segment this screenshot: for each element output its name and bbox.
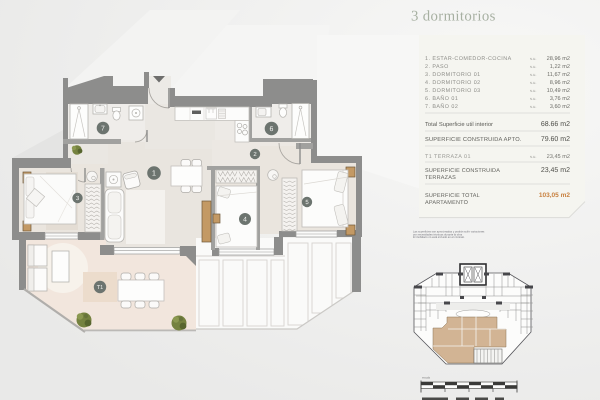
- svg-text:s.u.: s.u.: [530, 154, 536, 159]
- svg-text:TERRAZAS: TERRAZAS: [425, 175, 456, 181]
- svg-text:Total Superficie util interior: Total Superficie util interior: [425, 121, 493, 128]
- svg-text:SUPERFICIE CONSTRUIDA APTO.: SUPERFICIE CONSTRUIDA APTO.: [425, 137, 522, 143]
- svg-text:3 dormitorios: 3 dormitorios: [411, 9, 496, 25]
- svg-text:s.u.: s.u.: [530, 72, 536, 77]
- svg-text:5. DORMITORIO 03: 5. DORMITORIO 03: [425, 88, 481, 94]
- svg-text:s.u.: s.u.: [530, 64, 536, 69]
- svg-text:7. BAÑO 02: 7. BAÑO 02: [425, 103, 458, 110]
- svg-text:23,45 m2: 23,45 m2: [547, 154, 570, 160]
- svg-text:4. DORMITORIO 02: 4. DORMITORIO 02: [425, 80, 481, 86]
- svg-text:s.u.: s.u.: [530, 88, 536, 93]
- svg-text:11,67 m2: 11,67 m2: [547, 72, 570, 78]
- svg-text:8,96 m2: 8,96 m2: [550, 80, 570, 86]
- svg-text:1: 1: [152, 169, 156, 178]
- svg-text:7: 7: [101, 125, 105, 132]
- svg-text:s.u.: s.u.: [530, 96, 536, 101]
- svg-text:28,96 m2: 28,96 m2: [547, 56, 570, 62]
- svg-text:APARTAMENTO: APARTAMENTO: [425, 200, 469, 206]
- svg-text:1. ESTAR-COMEDOR-COCINA: 1. ESTAR-COMEDOR-COCINA: [425, 56, 512, 62]
- svg-text:1,22 m2: 1,22 m2: [550, 64, 570, 70]
- svg-text:SUPERFICIE CONSTRUIDA: SUPERFICIE CONSTRUIDA: [425, 168, 500, 174]
- svg-text:68.66 m2: 68.66 m2: [541, 121, 570, 128]
- svg-text:6: 6: [270, 126, 274, 133]
- svg-text:6. BAÑO 01: 6. BAÑO 01: [425, 95, 458, 102]
- svg-text:4: 4: [243, 216, 247, 223]
- svg-text:79.60 m2: 79.60 m2: [541, 136, 570, 143]
- svg-text:s.u.: s.u.: [530, 80, 536, 85]
- svg-text:El mobiliario no está incluido: El mobiliario no está incluido en el con…: [413, 236, 465, 239]
- svg-text:s.u.: s.u.: [530, 104, 536, 109]
- svg-text:3,60 m2: 3,60 m2: [550, 104, 570, 110]
- svg-text:T1: T1: [97, 285, 104, 291]
- svg-text:3. DORMITORIO 01: 3. DORMITORIO 01: [425, 72, 481, 78]
- svg-text:s.u.: s.u.: [530, 56, 536, 61]
- svg-text:escala: escala: [422, 376, 431, 380]
- svg-text:3,76 m2: 3,76 m2: [550, 96, 570, 102]
- svg-text:SUPERFICIE TOTAL: SUPERFICIE TOTAL: [425, 193, 480, 199]
- svg-text:2. PASO: 2. PASO: [425, 64, 449, 70]
- svg-text:T1 TERRAZA 01: T1 TERRAZA 01: [425, 154, 471, 160]
- svg-text:10,49 m2: 10,49 m2: [547, 88, 570, 94]
- svg-text:23,45 m2: 23,45 m2: [541, 167, 570, 174]
- svg-text:103,05 m2: 103,05 m2: [539, 192, 570, 199]
